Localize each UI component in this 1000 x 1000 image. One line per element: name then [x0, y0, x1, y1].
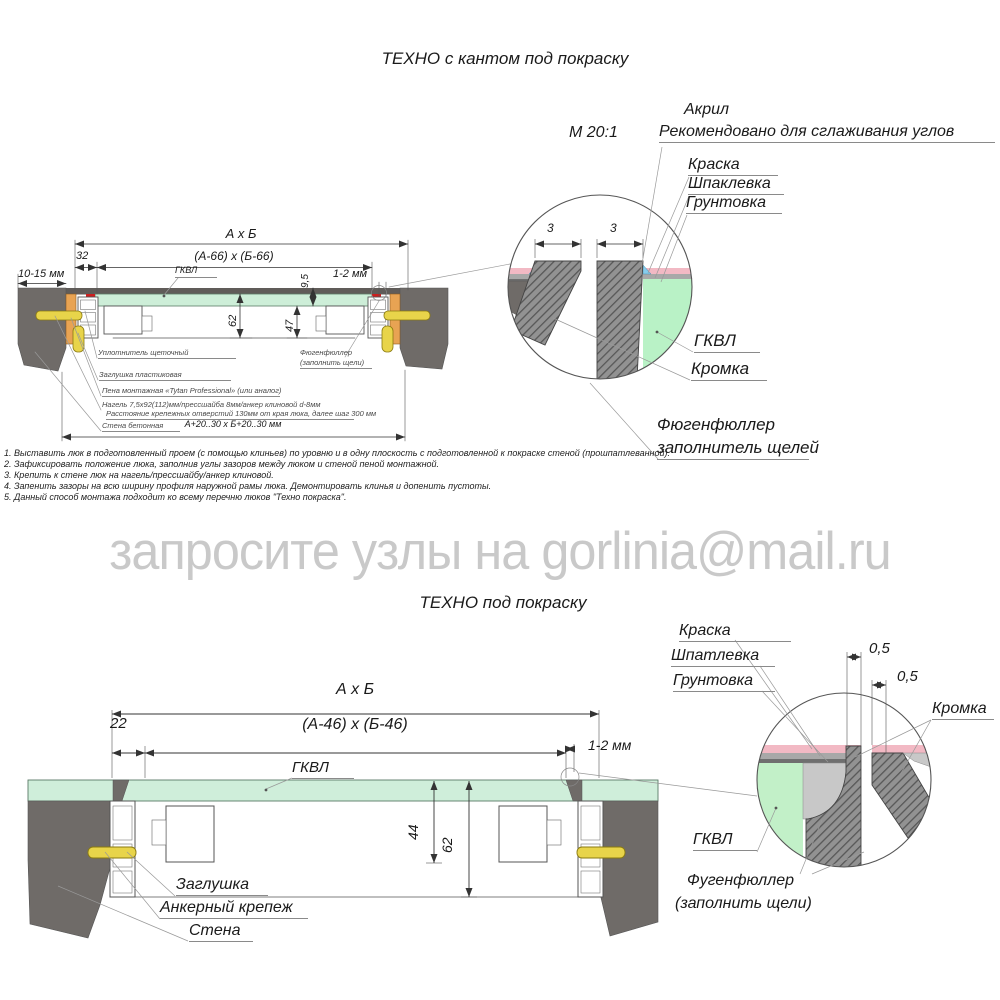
- top-detail-circle: [505, 147, 703, 459]
- label-filler-top-1: Фюгенфюллер: [300, 349, 352, 357]
- label-plastic-plug: Заглушка пластиковая: [99, 371, 231, 381]
- label-filler-detail-bottom-1: Фугенфюллер: [687, 872, 794, 890]
- dim-opening-top: (А-66) х (Б-66): [134, 250, 334, 263]
- dim-overall-bottom: А х Б: [255, 681, 455, 699]
- label-filler-detail-top-2: заполнитель щелей: [657, 439, 809, 460]
- label-concrete-wall: Стена бетонная: [102, 422, 180, 432]
- dim-depth-62-bottom: 62: [440, 837, 455, 853]
- dim-edge-gap-top: 1-2 мм: [333, 268, 367, 280]
- dim-offset-22: 22: [110, 716, 127, 733]
- label-gkvl-bottom-section: ГКВЛ: [292, 760, 354, 779]
- label-primer-bottom: Грунтовка: [673, 672, 775, 692]
- dim-opening-bottom: (А-46) х (Б-46): [255, 716, 455, 734]
- technical-drawing-page: ТЕХНО с кантом под покраску запросите уз…: [0, 0, 1000, 1000]
- dim-depth-62-top: 62: [227, 315, 239, 327]
- dim-wall-gap: 10-15 мм: [18, 268, 64, 280]
- label-paint-bottom: Краска: [679, 622, 791, 642]
- dim-gap-05-a: 0,5: [869, 641, 890, 658]
- label-edge-detail-bottom: Кромка: [932, 700, 994, 720]
- label-acryl: Акрил: [684, 101, 729, 119]
- label-edge-detail-top: Кромка: [691, 360, 767, 381]
- dim-offset-32: 32: [76, 250, 88, 262]
- label-filler-top-2: (заполнить щели): [300, 359, 372, 369]
- label-gkvl-detail-top: ГКВЛ: [694, 332, 760, 353]
- label-anchor-bottom: Анкерный крепеж: [160, 899, 308, 919]
- dim-gap-05-b: 0,5: [897, 669, 918, 686]
- note-1: 1. Выставить люк в подготовленный проем …: [4, 448, 670, 458]
- dim-overall-top: А х Б: [141, 227, 341, 241]
- watermark: запросите узлы на gorlinia@mail.ru: [25, 521, 975, 582]
- note-2: 2. Зафиксировать положение люка, заполни…: [4, 459, 439, 469]
- label-putty-top: Шпаклевка: [688, 175, 784, 195]
- dim-panel-thickness: 9,5: [300, 274, 311, 288]
- label-filler-detail-bottom-2: (заполнить щели): [675, 895, 812, 913]
- label-foam: Пена монтажная «Tytan Professional» (или…: [102, 387, 280, 397]
- label-gkvl-detail-bottom: ГКВЛ: [693, 831, 757, 851]
- label-gkvl-top-section: ГКВЛ: [175, 266, 217, 278]
- note-5: 5. Данный способ монтажа подходит ко все…: [4, 492, 346, 502]
- dim-edge-gap-bottom: 1-2 мм: [588, 738, 631, 753]
- note-3: 3. Крепить к стене люк на нагель/прессша…: [4, 470, 274, 480]
- label-wall-bottom: Стена: [189, 922, 253, 942]
- page-title-bottom: ТЕХНО под покраску: [303, 594, 703, 613]
- label-fastener: Нагель 7,5х92(112)мм/прессшайба 8мм/анке…: [102, 401, 321, 409]
- label-fastener-spacing: Расстояние крепежных отверстий 130мм от …: [106, 410, 354, 420]
- dim-gap3-left: 3: [547, 222, 554, 235]
- dim-depth-47: 47: [284, 320, 296, 332]
- label-brush-seal: Уплотнитель щеточный: [98, 349, 236, 359]
- label-paint-top: Краска: [688, 156, 778, 176]
- dim-gap3-right: 3: [610, 222, 617, 235]
- page-title-top: ТЕХНО с кантом под покраску: [305, 50, 705, 69]
- label-putty-bottom: Шпатлевка: [671, 647, 775, 667]
- label-filler-detail-top-1: Фюгенфюллер: [657, 416, 775, 435]
- bottom-section-drawing: [28, 710, 757, 941]
- label-primer-top: Грунтовка: [686, 194, 782, 214]
- detail-scale-label: М 20:1: [569, 124, 618, 142]
- note-4: 4. Запенить зазоры на всю ширину профиля…: [4, 481, 491, 491]
- label-acryl-note: Рекомендовано для сглаживания углов: [659, 123, 995, 143]
- dim-depth-44: 44: [406, 824, 421, 840]
- label-plug-bottom: Заглушка: [176, 876, 268, 896]
